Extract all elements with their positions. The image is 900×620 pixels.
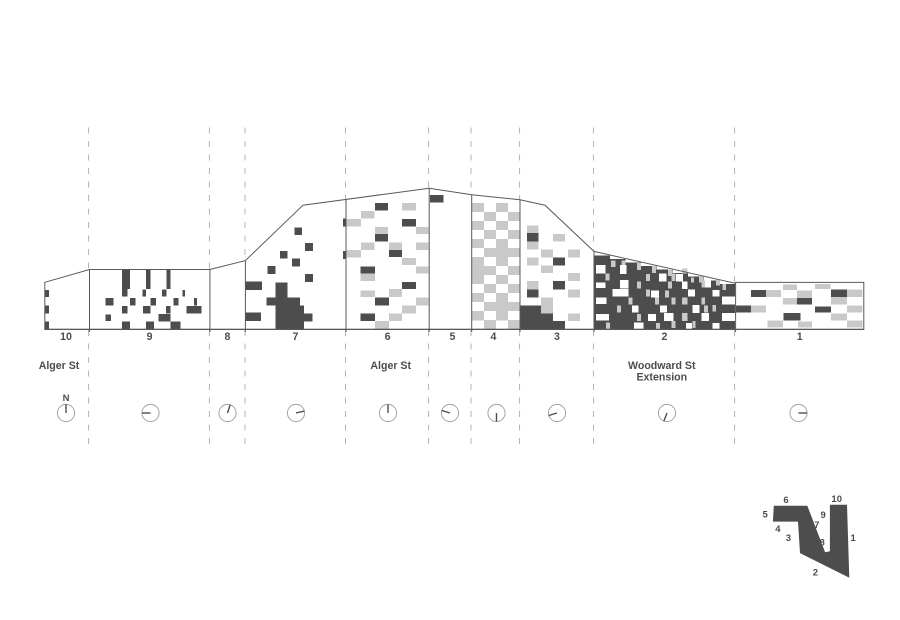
svg-text:8: 8 xyxy=(225,331,231,343)
svg-text:5: 5 xyxy=(762,510,768,521)
svg-text:6: 6 xyxy=(385,331,391,343)
svg-text:1: 1 xyxy=(797,331,803,343)
svg-text:10: 10 xyxy=(831,494,842,505)
svg-text:8: 8 xyxy=(820,538,825,549)
svg-text:Woodward St: Woodward St xyxy=(628,360,696,372)
svg-text:Alger St: Alger St xyxy=(370,360,411,372)
svg-text:4: 4 xyxy=(491,331,497,343)
svg-text:2: 2 xyxy=(662,331,668,343)
svg-text:5: 5 xyxy=(450,331,456,343)
svg-text:6: 6 xyxy=(783,495,788,506)
svg-text:9: 9 xyxy=(821,510,826,521)
svg-text:3: 3 xyxy=(786,533,791,544)
svg-text:4: 4 xyxy=(775,524,781,535)
svg-text:10: 10 xyxy=(60,331,72,343)
svg-text:9: 9 xyxy=(147,331,153,343)
svg-text:3: 3 xyxy=(554,331,560,343)
svg-text:2: 2 xyxy=(813,568,818,579)
svg-text:7: 7 xyxy=(293,331,299,343)
svg-text:7: 7 xyxy=(814,520,819,531)
svg-text:Alger St: Alger St xyxy=(39,360,80,372)
svg-text:Extension: Extension xyxy=(636,372,687,384)
svg-text:1: 1 xyxy=(851,533,857,544)
svg-text:N: N xyxy=(63,393,70,404)
